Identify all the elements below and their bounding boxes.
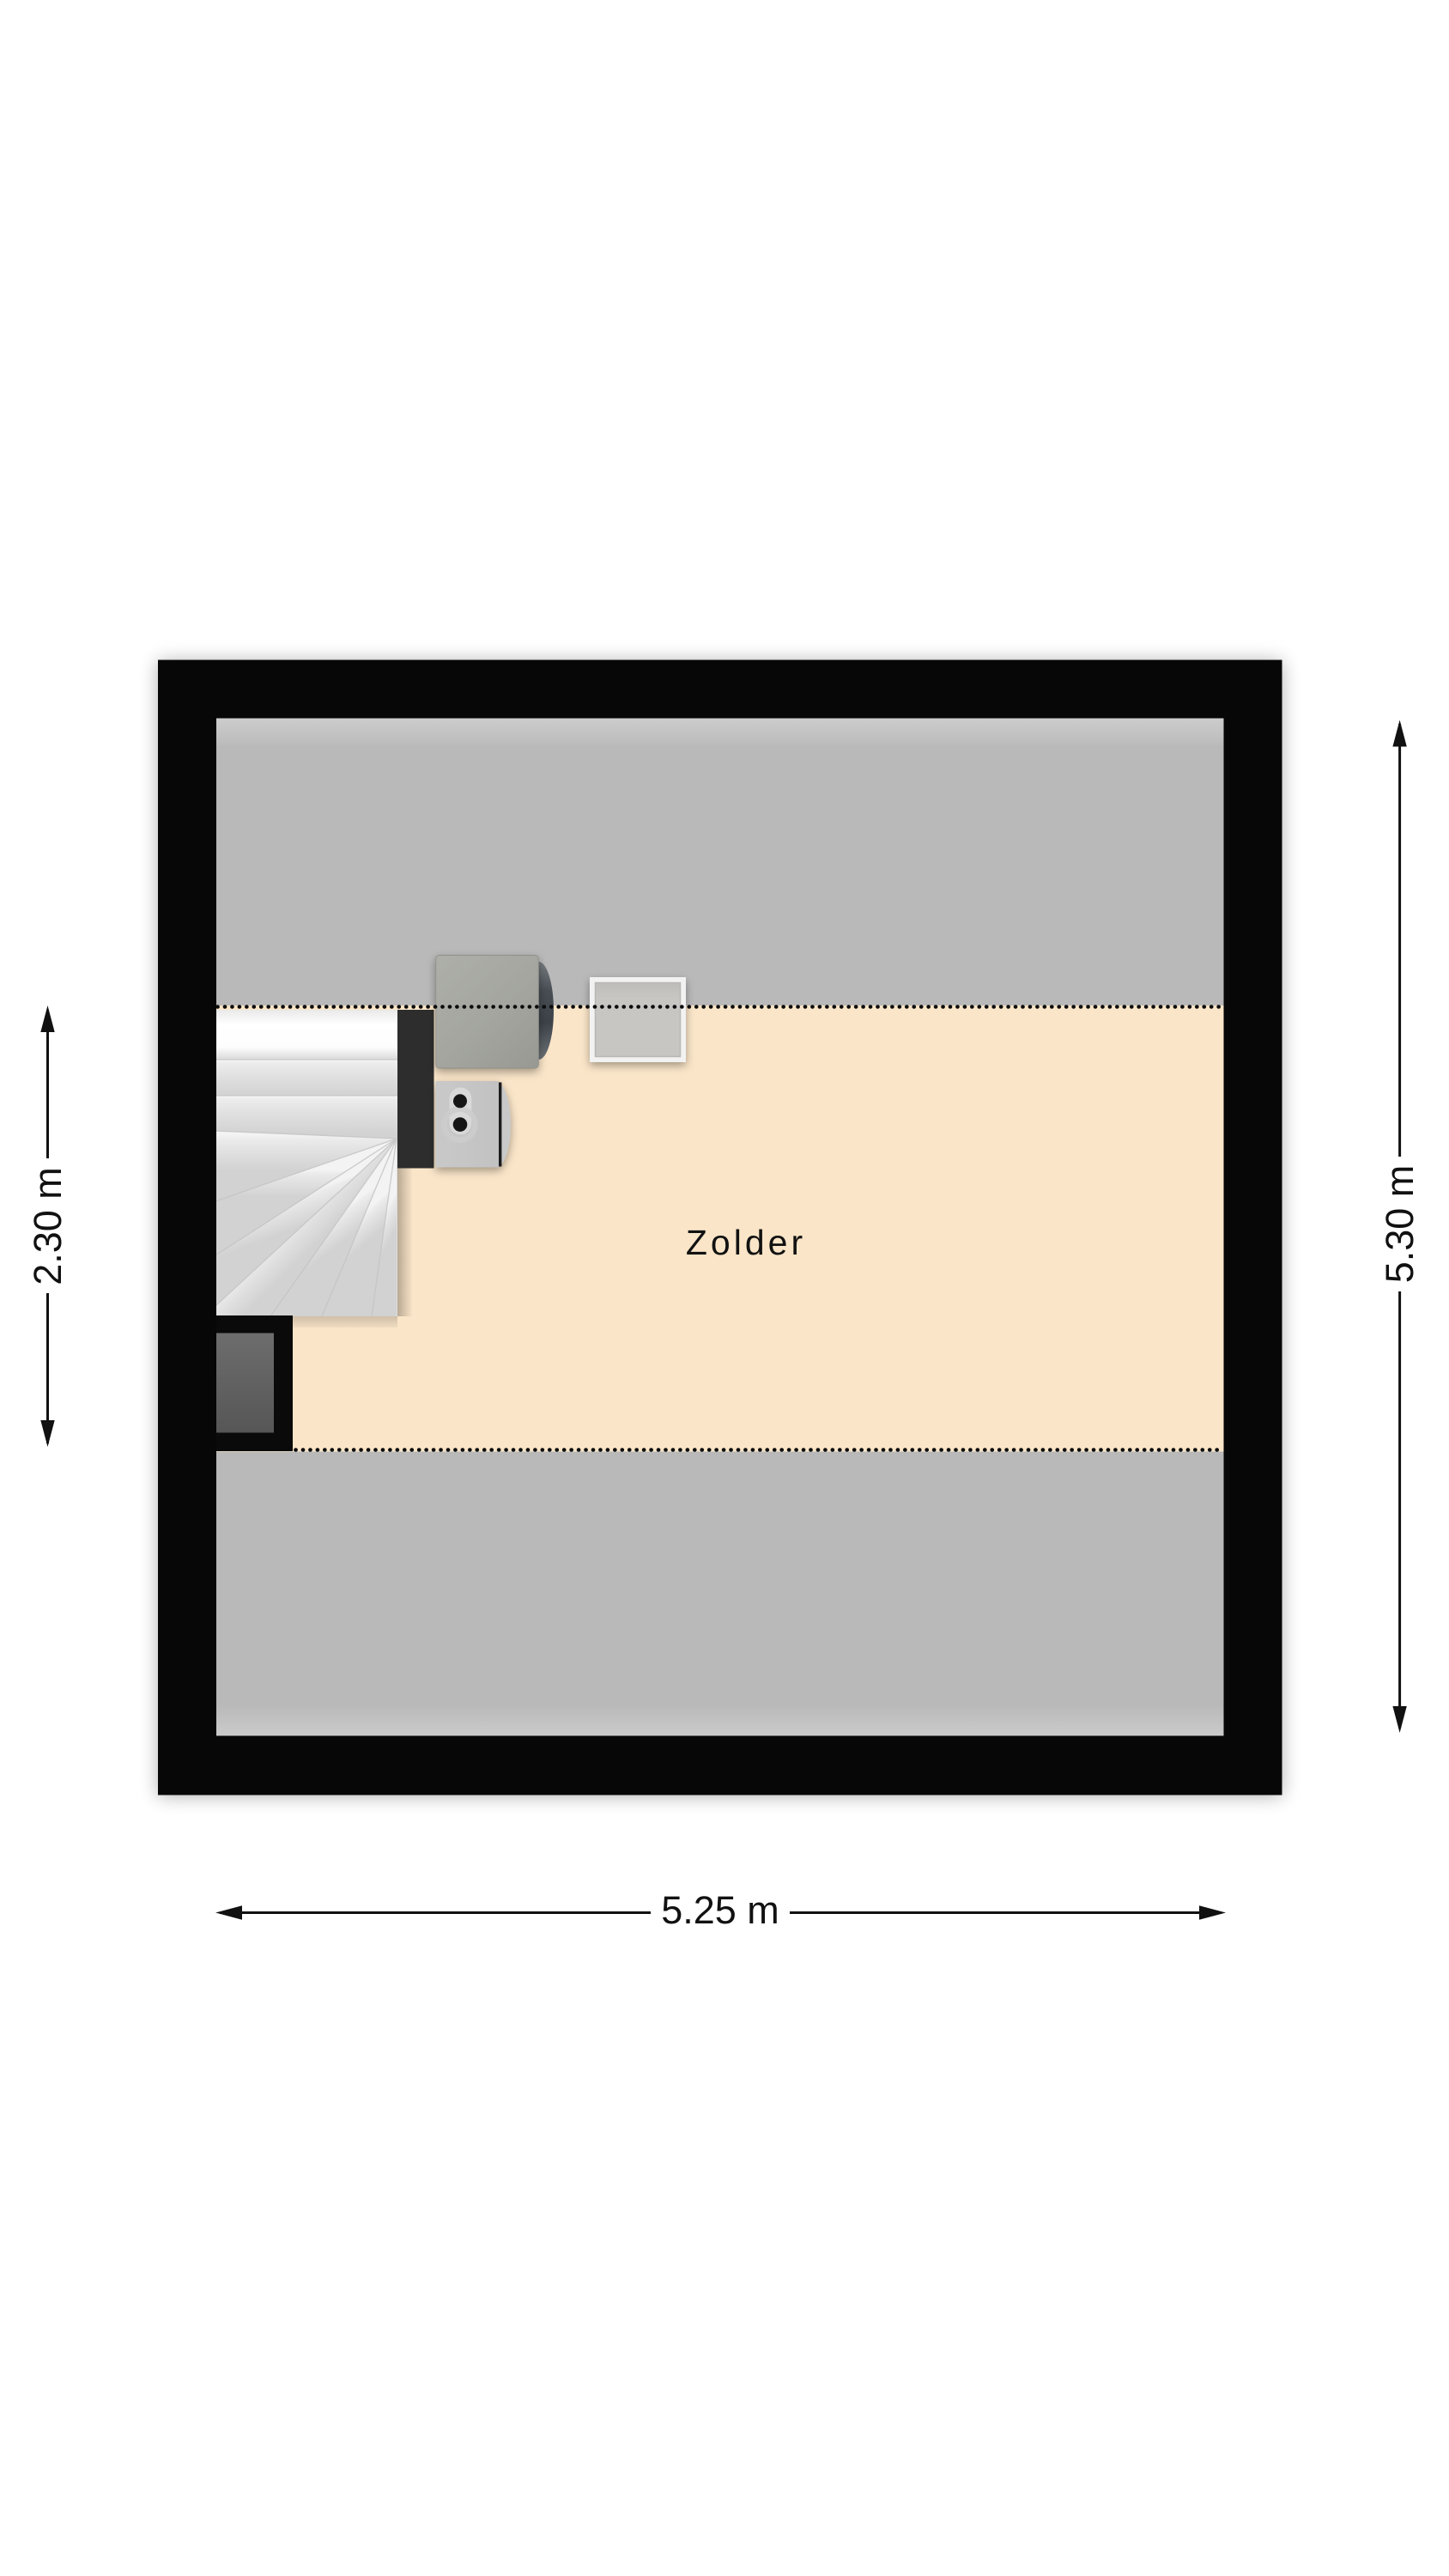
svg-text:2.30 m: 2.30 m: [26, 1167, 70, 1285]
svg-text:5.25 m: 5.25 m: [661, 1888, 779, 1932]
svg-text:5.30 m: 5.30 m: [1378, 1165, 1422, 1284]
svg-text:Zolder: Zolder: [686, 1223, 806, 1262]
